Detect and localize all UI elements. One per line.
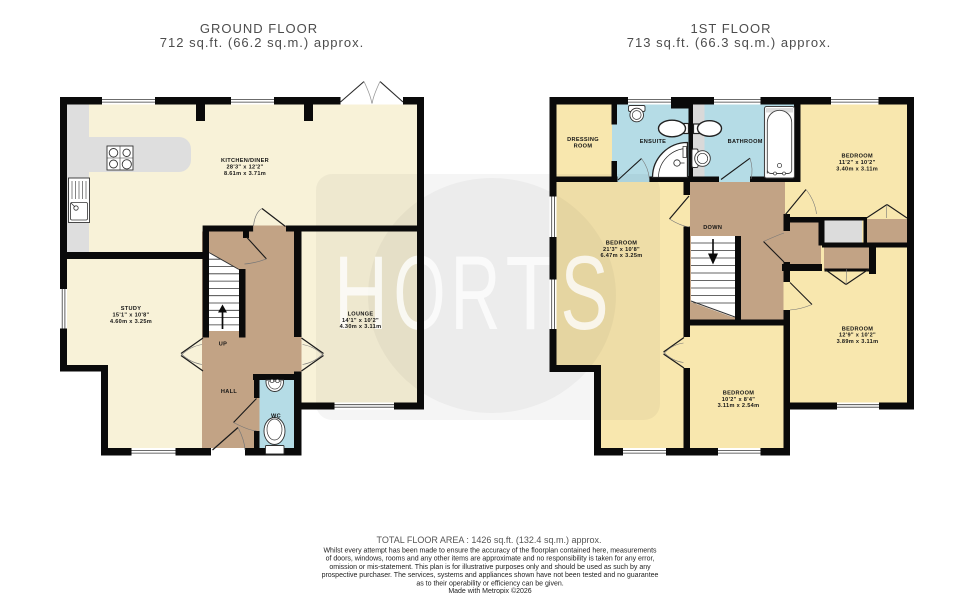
svg-text:H: H (334, 235, 388, 352)
svg-text:3.89m x 3.11m: 3.89m x 3.11m (837, 339, 879, 345)
svg-text:KITCHEN/DINER: KITCHEN/DINER (221, 158, 269, 164)
svg-text:10'2" x 8'4": 10'2" x 8'4" (722, 397, 756, 403)
svg-text:1ST FLOOR: 1ST FLOOR (690, 21, 771, 36)
svg-text:BEDROOM: BEDROOM (723, 391, 754, 397)
svg-text:T: T (506, 235, 556, 352)
svg-text:STUDY: STUDY (121, 306, 142, 312)
svg-text:Whilst every attempt has been: Whilst every attempt has been made to en… (323, 548, 657, 555)
svg-text:712 sq.ft. (66.2 sq.m.) approx: 712 sq.ft. (66.2 sq.m.) approx. (160, 35, 364, 50)
svg-text:HALL: HALL (221, 389, 237, 395)
svg-text:GROUND FLOOR: GROUND FLOOR (200, 21, 318, 36)
svg-text:ROOM: ROOM (574, 143, 593, 149)
svg-text:R: R (451, 235, 501, 352)
svg-text:14'1" x 10'2": 14'1" x 10'2" (342, 318, 379, 324)
svg-text:BEDROOM: BEDROOM (841, 153, 872, 159)
svg-text:12'9" x 10'2": 12'9" x 10'2" (839, 333, 876, 339)
svg-text:prospective purchaser. The ser: prospective purchaser. The services, sys… (322, 572, 659, 579)
svg-text:15'1" x 10'8": 15'1" x 10'8" (112, 312, 149, 318)
svg-text:3.11m x 2.54m: 3.11m x 2.54m (718, 403, 760, 409)
svg-text:3.40m x 3.11m: 3.40m x 3.11m (836, 167, 878, 173)
svg-text:DOWN: DOWN (703, 225, 722, 231)
svg-text:8.61m x 3.71m: 8.61m x 3.71m (224, 171, 266, 177)
svg-text:LOUNGE: LOUNGE (348, 311, 374, 317)
svg-text:TOTAL FLOOR AREA : 1426 sq.ft.: TOTAL FLOOR AREA : 1426 sq.ft. (132.4 sq… (377, 535, 602, 545)
svg-text:11'2" x 10'2": 11'2" x 10'2" (839, 160, 876, 166)
svg-text:ENSUITE: ENSUITE (640, 139, 666, 145)
svg-text:UP: UP (219, 342, 227, 348)
svg-text:4.60m x 3.25m: 4.60m x 3.25m (110, 319, 152, 325)
svg-text:4.30m x 3.11m: 4.30m x 3.11m (340, 324, 382, 330)
svg-text:6.47m x 3.25m: 6.47m x 3.25m (600, 253, 642, 259)
svg-text:Made with Metropix ©2026: Made with Metropix ©2026 (448, 587, 531, 594)
svg-text:WC: WC (271, 414, 281, 420)
svg-text:of doors, windows, rooms and a: of doors, windows, rooms and any other i… (326, 556, 655, 563)
svg-text:28'3" x 12'2": 28'3" x 12'2" (226, 165, 263, 171)
svg-text:omission or mis-statement. Thi: omission or mis-statement. This plan is … (329, 564, 651, 571)
svg-text:BEDROOM: BEDROOM (606, 241, 637, 247)
svg-text:21'3" x 10'8": 21'3" x 10'8" (603, 247, 640, 253)
svg-text:713 sq.ft. (66.3 sq.m.) approx: 713 sq.ft. (66.3 sq.m.) approx. (627, 35, 831, 50)
svg-text:BEDROOM: BEDROOM (842, 326, 873, 332)
svg-text:DRESSING: DRESSING (567, 137, 599, 143)
svg-text:as to their operability or eff: as to their operability or efficiency ca… (416, 580, 563, 587)
svg-text:BATHROOM: BATHROOM (728, 139, 763, 145)
